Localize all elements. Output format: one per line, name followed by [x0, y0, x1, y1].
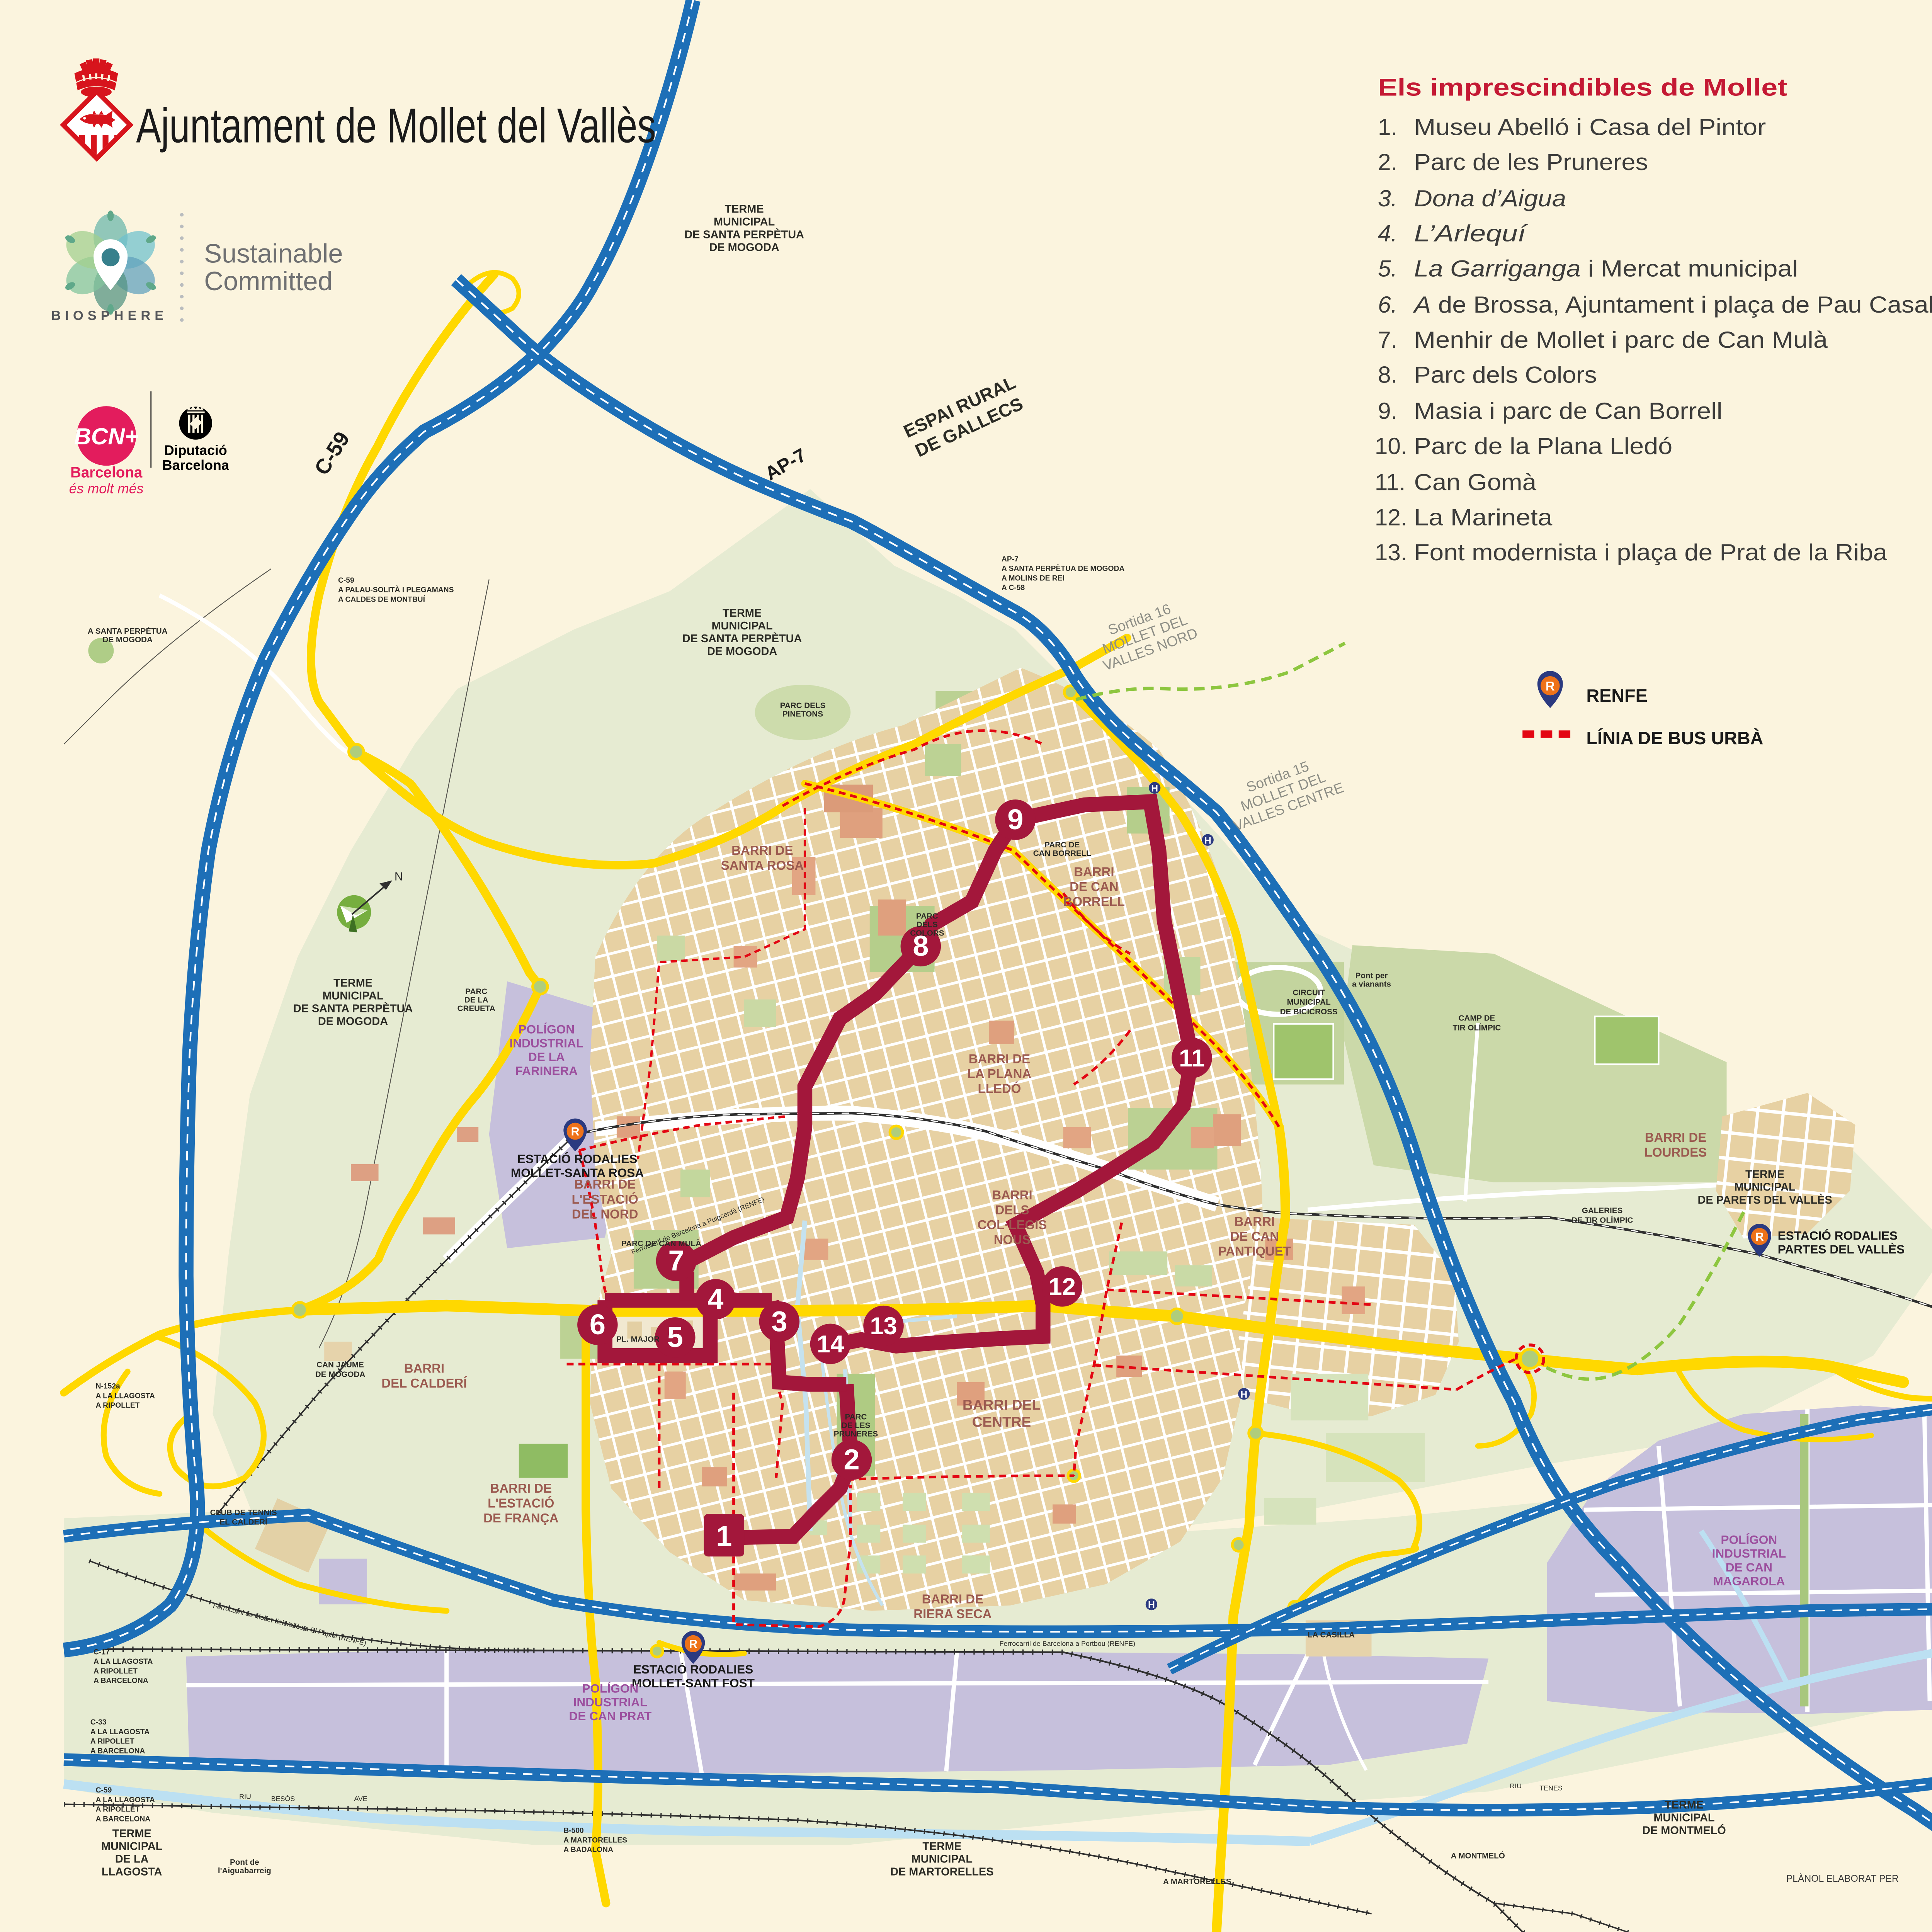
- svg-text:FARINERA: FARINERA: [515, 1064, 578, 1078]
- svg-text:Can Gomà: Can Gomà: [1414, 469, 1537, 495]
- svg-text:BARRI DE: BARRI DE: [490, 1481, 552, 1495]
- svg-text:La Garriganga i Mercat municip: La Garriganga i Mercat municipal: [1414, 255, 1798, 281]
- svg-text:1.: 1.: [1378, 114, 1397, 140]
- svg-text:PLÀNOL ELABORAT PER: PLÀNOL ELABORAT PER: [1786, 1874, 1899, 1884]
- svg-text:TERME: TERME: [1745, 1168, 1784, 1181]
- svg-text:Ajuntament de Mollet del Vallè: Ajuntament de Mollet del Vallès: [136, 98, 656, 153]
- svg-text:EL CALDERÍ: EL CALDERÍ: [219, 1518, 268, 1527]
- svg-text:R: R: [1546, 679, 1555, 693]
- svg-text:5.: 5.: [1378, 255, 1397, 281]
- svg-text:PRUNERES: PRUNERES: [834, 1429, 878, 1438]
- svg-text:14: 14: [817, 1331, 844, 1358]
- svg-text:l'Aiguabarreig: l'Aiguabarreig: [218, 1866, 271, 1875]
- svg-text:La Marineta: La Marineta: [1414, 504, 1553, 530]
- svg-text:L’Arlequí: L’Arlequí: [1414, 220, 1528, 247]
- svg-text:L'ESTACIÓ: L'ESTACIÓ: [572, 1192, 638, 1206]
- svg-text:C-17: C-17: [94, 1648, 110, 1656]
- svg-text:7: 7: [668, 1245, 684, 1277]
- svg-text:BCN+: BCN+: [74, 423, 138, 449]
- svg-text:DE MARTORELLES: DE MARTORELLES: [890, 1866, 993, 1878]
- svg-text:Parc de les Pruneres: Parc de les Pruneres: [1414, 149, 1648, 175]
- svg-text:A MONTMELÓ: A MONTMELÓ: [1451, 1851, 1505, 1861]
- svg-text:Dona d’Aigua: Dona d’Aigua: [1414, 185, 1566, 211]
- svg-text:CAN JAUME: CAN JAUME: [316, 1360, 364, 1369]
- svg-text:A MOLINS DE REI: A MOLINS DE REI: [1002, 574, 1065, 582]
- svg-text:LA CASILLA: LA CASILLA: [1308, 1630, 1355, 1639]
- svg-text:1: 1: [716, 1520, 732, 1552]
- svg-text:PARC DE: PARC DE: [1044, 840, 1080, 849]
- svg-text:Committed: Committed: [204, 266, 332, 296]
- svg-text:RENFE: RENFE: [1586, 685, 1648, 706]
- svg-text:POLÍGON: POLÍGON: [1721, 1532, 1777, 1546]
- svg-text:MUNICIPAL: MUNICIPAL: [1734, 1181, 1795, 1194]
- svg-text:DE MOGODA: DE MOGODA: [709, 241, 779, 253]
- svg-text:DE MOGODA: DE MOGODA: [315, 1370, 366, 1379]
- svg-text:Menhir de Mollet i parc de Can: Menhir de Mollet i parc de Can Mulà: [1414, 327, 1828, 353]
- svg-text:Pont de: Pont de: [230, 1858, 259, 1867]
- svg-text:BARRI DE: BARRI DE: [731, 843, 793, 857]
- svg-text:12: 12: [1049, 1273, 1076, 1300]
- svg-text:Els imprescindibles de Mollet: Els imprescindibles de Mollet: [1378, 74, 1787, 101]
- svg-text:MUNICIPAL: MUNICIPAL: [711, 620, 772, 632]
- svg-text:RIU: RIU: [239, 1793, 251, 1801]
- svg-text:BARRI: BARRI: [1235, 1214, 1275, 1229]
- svg-text:Sustainable: Sustainable: [204, 239, 343, 269]
- svg-text:DE CAN: DE CAN: [1726, 1560, 1772, 1574]
- svg-text:A CALDES DE MONTBUÍ: A CALDES DE MONTBUÍ: [338, 595, 425, 604]
- svg-text:DE MOGODA: DE MOGODA: [318, 1015, 388, 1027]
- svg-text:11.: 11.: [1375, 469, 1406, 495]
- svg-text:Barcelona: Barcelona: [162, 457, 230, 473]
- svg-text:BARRI DE: BARRI DE: [922, 1592, 984, 1606]
- svg-text:B-500: B-500: [563, 1827, 583, 1835]
- svg-text:Diputació: Diputació: [164, 443, 227, 458]
- svg-text:DE BICICROSS: DE BICICROSS: [1280, 1007, 1338, 1016]
- svg-text:DE SANTA PERPÈTUA: DE SANTA PERPÈTUA: [684, 228, 804, 241]
- svg-text:CLUB DE TENNIS: CLUB DE TENNIS: [210, 1508, 277, 1517]
- svg-text:LA PLANA: LA PLANA: [968, 1066, 1032, 1081]
- svg-text:2.: 2.: [1378, 149, 1397, 175]
- svg-text:DE CAN PRAT: DE CAN PRAT: [569, 1709, 652, 1723]
- svg-text:A MARTORELLES: A MARTORELLES: [563, 1836, 627, 1844]
- svg-text:Pont per: Pont per: [1355, 971, 1388, 980]
- svg-text:TERME: TERME: [333, 977, 372, 989]
- svg-text:A SANTA PERPÈTUA: A SANTA PERPÈTUA: [88, 627, 168, 636]
- svg-text:Parc de la Plana Lledó: Parc de la Plana Lledó: [1414, 433, 1673, 459]
- svg-text:BARRI: BARRI: [992, 1188, 1032, 1202]
- svg-text:MUNICIPAL: MUNICIPAL: [714, 216, 775, 228]
- svg-text:A RIPOLLET: A RIPOLLET: [90, 1738, 134, 1746]
- svg-text:TERME: TERME: [922, 1840, 961, 1853]
- svg-text:LÍNIA DE BUS URBÀ: LÍNIA DE BUS URBÀ: [1586, 728, 1763, 748]
- svg-text:RIERA SECA: RIERA SECA: [913, 1607, 992, 1621]
- svg-text:R: R: [571, 1126, 580, 1138]
- svg-text:9: 9: [1007, 803, 1023, 835]
- svg-text:3.: 3.: [1378, 185, 1397, 211]
- svg-text:DE MONTMELÓ: DE MONTMELÓ: [1642, 1823, 1726, 1837]
- svg-text:12.: 12.: [1375, 504, 1407, 530]
- svg-text:GALERIES: GALERIES: [1582, 1206, 1622, 1215]
- svg-text:R: R: [689, 1638, 697, 1651]
- svg-text:RIU: RIU: [1510, 1782, 1522, 1790]
- svg-text:13.: 13.: [1375, 539, 1407, 565]
- svg-text:C-59: C-59: [96, 1786, 112, 1794]
- svg-text:NOUS: NOUS: [994, 1232, 1031, 1247]
- svg-text:MUNICIPAL: MUNICIPAL: [1287, 998, 1331, 1007]
- svg-text:R: R: [1755, 1231, 1764, 1243]
- svg-text:CAMP DE: CAMP DE: [1459, 1014, 1495, 1022]
- svg-text:A MARTORELLES: A MARTORELLES: [1163, 1877, 1231, 1886]
- svg-text:4: 4: [707, 1283, 723, 1315]
- svg-text:PARTES DEL VALLÈS: PARTES DEL VALLÈS: [1778, 1242, 1905, 1256]
- svg-text:INDUSTRIAL: INDUSTRIAL: [1712, 1546, 1786, 1560]
- svg-text:AP-7: AP-7: [1002, 555, 1019, 563]
- svg-text:COLORS: COLORS: [910, 929, 944, 937]
- svg-text:DE PARETS DEL VALLÈS: DE PARETS DEL VALLÈS: [1697, 1193, 1832, 1206]
- svg-text:A de Brossa, Ajuntament i plaç: A de Brossa, Ajuntament i plaça de Pau C…: [1413, 291, 1932, 318]
- svg-text:DEL CALDERÍ: DEL CALDERÍ: [381, 1376, 467, 1390]
- svg-text:3: 3: [771, 1305, 787, 1337]
- svg-text:ESTACIÓ RODALIES: ESTACIÓ RODALIES: [517, 1152, 637, 1166]
- svg-text:TERME: TERME: [1665, 1799, 1704, 1811]
- svg-text:POLÍGON: POLÍGON: [518, 1022, 575, 1036]
- svg-text:DE TIR OLÍMPIC: DE TIR OLÍMPIC: [1571, 1216, 1633, 1225]
- svg-text:A BADALONA: A BADALONA: [563, 1846, 613, 1854]
- svg-text:DE CAN: DE CAN: [1230, 1229, 1279, 1243]
- svg-text:DE MOGODA: DE MOGODA: [707, 645, 777, 658]
- svg-text:Font modernista i plaça de Pra: Font modernista i plaça de Prat de la Ri…: [1414, 539, 1888, 565]
- svg-text:A BARCELONA: A BARCELONA: [94, 1677, 148, 1685]
- svg-text:BARRI: BARRI: [404, 1361, 445, 1375]
- svg-text:PARC: PARC: [465, 987, 487, 996]
- svg-text:A LA LLAGOSTA: A LA LLAGOSTA: [90, 1728, 150, 1736]
- svg-text:H: H: [1204, 835, 1211, 846]
- svg-text:A RIPOLLET: A RIPOLLET: [96, 1401, 140, 1410]
- svg-text:BIOSPHERE: BIOSPHERE: [51, 308, 168, 323]
- svg-text:BESÒS: BESÒS: [271, 1794, 295, 1803]
- svg-text:PINETONS: PINETONS: [782, 710, 823, 719]
- svg-text:A PALAU-SOLITÀ I PLEGAMANS: A PALAU-SOLITÀ I PLEGAMANS: [338, 586, 454, 594]
- svg-text:DE LA: DE LA: [115, 1853, 149, 1866]
- svg-text:MOLLET-SANT FOST: MOLLET-SANT FOST: [632, 1676, 755, 1690]
- svg-text:TERME: TERME: [725, 203, 764, 215]
- svg-text:INDUSTRIAL: INDUSTRIAL: [510, 1036, 584, 1050]
- svg-text:PARC: PARC: [845, 1412, 867, 1421]
- svg-text:és molt més: és molt més: [69, 481, 144, 497]
- svg-text:LOURDES: LOURDES: [1645, 1145, 1707, 1160]
- svg-text:2: 2: [844, 1444, 859, 1476]
- svg-text:BARRI DE: BARRI DE: [969, 1052, 1031, 1066]
- svg-text:A C-58: A C-58: [1002, 584, 1025, 592]
- svg-text:MUNICIPAL: MUNICIPAL: [101, 1840, 162, 1853]
- svg-text:Museu Abelló i Casa del Pintor: Museu Abelló i Casa del Pintor: [1414, 114, 1766, 140]
- svg-text:PARC DELS: PARC DELS: [780, 701, 826, 710]
- svg-text:BARRI: BARRI: [1074, 864, 1114, 879]
- svg-text:N: N: [395, 870, 403, 883]
- svg-text:N-152a: N-152a: [96, 1383, 120, 1391]
- svg-text:COL·LEGIS: COL·LEGIS: [978, 1218, 1047, 1232]
- svg-text:13: 13: [870, 1313, 897, 1340]
- svg-text:7.: 7.: [1378, 327, 1397, 353]
- svg-text:C-33: C-33: [90, 1718, 107, 1726]
- svg-text:CREUETA: CREUETA: [457, 1004, 495, 1013]
- svg-text:INDUSTRIAL: INDUSTRIAL: [573, 1695, 647, 1709]
- svg-text:A LA LLAGOSTA: A LA LLAGOSTA: [96, 1796, 155, 1804]
- svg-text:4.: 4.: [1378, 220, 1397, 247]
- svg-text:L'ESTACIÓ: L'ESTACIÓ: [488, 1496, 554, 1510]
- svg-text:TENES: TENES: [1539, 1784, 1563, 1792]
- svg-text:9.: 9.: [1378, 398, 1397, 424]
- svg-text:DE CAN: DE CAN: [1070, 879, 1119, 894]
- svg-text:DE FRANÇA: DE FRANÇA: [483, 1511, 558, 1525]
- svg-text:TERME: TERME: [112, 1828, 151, 1840]
- svg-text:A LA LLAGOSTA: A LA LLAGOSTA: [96, 1392, 155, 1400]
- svg-text:DELS: DELS: [917, 920, 938, 929]
- svg-text:TERME: TERME: [723, 607, 762, 619]
- svg-text:Masia i parc de Can Borrell: Masia i parc de Can Borrell: [1414, 398, 1723, 424]
- svg-text:MUNICIPAL: MUNICIPAL: [1653, 1811, 1714, 1824]
- svg-text:A BARCELONA: A BARCELONA: [96, 1815, 151, 1823]
- svg-text:6.: 6.: [1378, 291, 1397, 318]
- svg-text:C-59: C-59: [338, 577, 354, 585]
- svg-text:DELS: DELS: [995, 1202, 1029, 1217]
- svg-text:BARRI DE: BARRI DE: [574, 1177, 636, 1191]
- svg-text:LLAGOSTA: LLAGOSTA: [102, 1866, 162, 1878]
- svg-text:PL. MAJOR: PL. MAJOR: [616, 1335, 660, 1344]
- svg-text:MAGAROLA: MAGAROLA: [1713, 1574, 1785, 1588]
- svg-text:TIR OLÍMPIC: TIR OLÍMPIC: [1452, 1023, 1501, 1032]
- svg-text:A LA LLAGOSTA: A LA LLAGOSTA: [94, 1658, 153, 1666]
- svg-text:POLÍGON: POLÍGON: [582, 1681, 638, 1695]
- svg-text:Parc dels Colors: Parc dels Colors: [1414, 362, 1597, 388]
- svg-text:5: 5: [667, 1321, 683, 1353]
- svg-text:A RIPOLLET: A RIPOLLET: [96, 1806, 140, 1814]
- svg-text:CAN BORRELL: CAN BORRELL: [1033, 849, 1091, 858]
- svg-text:DE SANTA PERPÈTUA: DE SANTA PERPÈTUA: [293, 1002, 413, 1015]
- svg-text:DE LA: DE LA: [528, 1050, 565, 1064]
- svg-text:10.: 10.: [1375, 433, 1407, 459]
- svg-text:MUNICIPAL: MUNICIPAL: [912, 1853, 973, 1866]
- svg-text:BARRI DE: BARRI DE: [1645, 1130, 1707, 1145]
- svg-text:DE MOGODA: DE MOGODA: [102, 635, 153, 644]
- svg-text:BORRELL: BORRELL: [1063, 894, 1125, 908]
- svg-text:AVE: AVE: [354, 1795, 367, 1803]
- svg-text:A RIPOLLET: A RIPOLLET: [94, 1667, 138, 1675]
- svg-text:ESTACIÓ RODALIES: ESTACIÓ RODALIES: [1778, 1228, 1898, 1242]
- svg-text:PARC: PARC: [916, 912, 938, 920]
- svg-text:H: H: [1151, 784, 1158, 794]
- svg-text:H: H: [1240, 1389, 1247, 1400]
- svg-text:6: 6: [590, 1308, 605, 1340]
- svg-text:DE LES: DE LES: [842, 1421, 871, 1430]
- svg-text:8.: 8.: [1378, 362, 1397, 388]
- svg-text:LLEDÓ: LLEDÓ: [978, 1082, 1021, 1096]
- svg-text:DEL NORD: DEL NORD: [572, 1207, 638, 1221]
- svg-text:Ferrocarril de Barcelona a Por: Ferrocarril de Barcelona a Portbou (RENF…: [999, 1639, 1135, 1647]
- svg-text:MUNICIPAL: MUNICIPAL: [322, 990, 383, 1002]
- svg-text:SANTA ROSA: SANTA ROSA: [721, 858, 804, 872]
- svg-text:A SANTA PERPÈTUA DE MOGODA: A SANTA PERPÈTUA DE MOGODA: [1002, 565, 1124, 573]
- svg-text:CIRCUIT: CIRCUIT: [1293, 988, 1325, 997]
- svg-text:DE SANTA PERPÈTUA: DE SANTA PERPÈTUA: [682, 632, 802, 645]
- svg-text:a vianants: a vianants: [1352, 980, 1391, 988]
- svg-text:DE LA: DE LA: [464, 996, 488, 1005]
- svg-text:A BARCELONA: A BARCELONA: [90, 1747, 145, 1755]
- svg-text:ESTACIÓ RODALIES: ESTACIÓ RODALIES: [633, 1662, 753, 1676]
- svg-text:Barcelona: Barcelona: [70, 464, 143, 481]
- svg-text:CENTRE: CENTRE: [972, 1414, 1031, 1430]
- svg-text:BARRI DEL: BARRI DEL: [963, 1397, 1041, 1413]
- svg-text:11: 11: [1179, 1045, 1205, 1072]
- svg-text:H: H: [1148, 1600, 1155, 1611]
- svg-text:PANTIQUET: PANTIQUET: [1218, 1244, 1291, 1259]
